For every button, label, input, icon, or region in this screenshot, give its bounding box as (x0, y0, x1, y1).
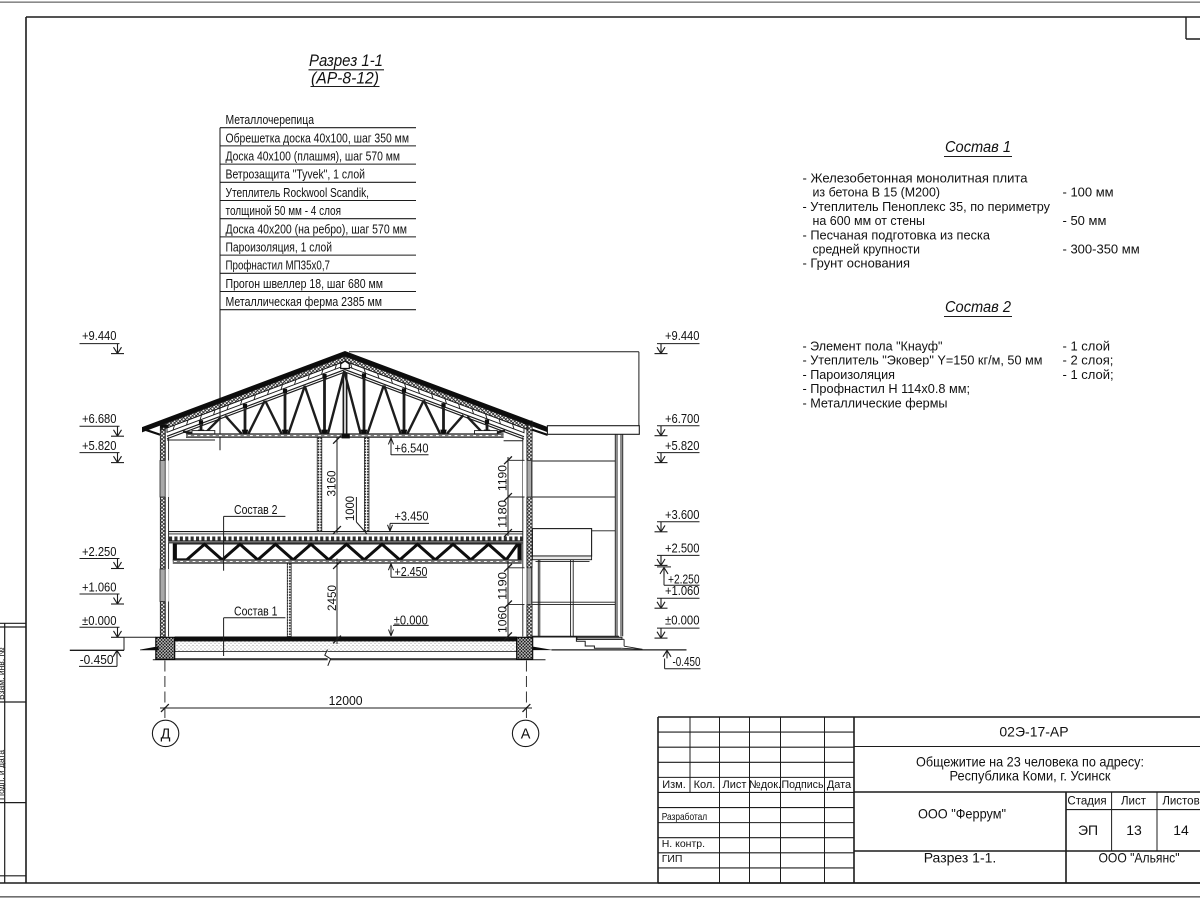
svg-text:из бетона В 15 (М200): из бетона В 15 (М200) (813, 185, 941, 200)
svg-text:ЭП: ЭП (1078, 822, 1098, 838)
svg-text:Состав 2: Состав 2 (945, 299, 1011, 316)
svg-text:- 2 слоя;: - 2 слоя; (1063, 353, 1114, 368)
svg-text:- 1 слой: - 1 слой (1063, 339, 1111, 354)
svg-text:Состав 1: Состав 1 (945, 139, 1011, 156)
svg-text:- 300-350 мм: - 300-350 мм (1063, 242, 1140, 257)
svg-text:- Элемент пола "Кнауф": - Элемент пола "Кнауф" (803, 339, 943, 354)
svg-text:средней крупности: средней крупности (813, 242, 921, 257)
svg-text:3160: 3160 (325, 470, 339, 496)
svg-text:Металлическая ферма 2385 мм: Металлическая ферма 2385 мм (226, 295, 383, 309)
svg-text:Разрез 1-1: Разрез 1-1 (309, 51, 383, 70)
svg-text:- 50 мм: - 50 мм (1063, 213, 1107, 228)
svg-text:(АР-8-12): (АР-8-12) (311, 69, 379, 88)
svg-text:- 100 мм: - 100 мм (1063, 185, 1114, 200)
svg-text:+9.440: +9.440 (665, 329, 700, 343)
svg-text:Подп. и дата: Подп. и дата (0, 750, 6, 800)
svg-text:Доска 40х200 (на ребро), шаг 5: Доска 40х200 (на ребро), шаг 570 мм (226, 222, 408, 236)
svg-text:2450: 2450 (325, 585, 339, 611)
svg-text:Дата: Дата (827, 779, 852, 791)
svg-text:Состав 2: Состав 2 (234, 502, 278, 517)
svg-text:- Железобетонная монолитная п: - Железобетонная монолитная плита (803, 171, 1029, 186)
svg-text:Разработал: Разработал (662, 811, 708, 823)
svg-text:ООО "Альянс": ООО "Альянс" (1099, 850, 1180, 866)
svg-text:- Грунт основания: - Грунт основания (803, 256, 911, 271)
svg-text:Металлочерепица: Металлочерепица (226, 113, 315, 127)
svg-text:Подпись: Подпись (782, 779, 824, 791)
svg-text:Ветрозащита "Tyvek", 1 слой: Ветрозащита "Tyvek", 1 слой (226, 168, 366, 182)
svg-text:1190: 1190 (495, 465, 509, 491)
svg-text:+5.820: +5.820 (665, 439, 700, 453)
svg-text:Профнастил МП35х0,7: Профнастил МП35х0,7 (226, 259, 331, 273)
svg-text:+3.600: +3.600 (665, 508, 700, 522)
svg-text:Листов: Листов (1162, 796, 1199, 808)
svg-text:+5.820: +5.820 (82, 439, 117, 453)
svg-text:Утеплитель Rockwool Scandik,: Утеплитель Rockwool Scandik, (226, 186, 370, 200)
svg-text:+2.250: +2.250 (82, 545, 117, 559)
svg-text:±0.000: ±0.000 (665, 614, 700, 628)
svg-text:Лист: Лист (723, 779, 747, 791)
svg-text:Пароизоляция, 1 слой: Пароизоляция, 1 слой (226, 241, 333, 255)
svg-text:- Песчаная подготовка из песка: - Песчаная подготовка из песка (803, 227, 991, 242)
svg-text:Взам. инв. №: Взам. инв. № (0, 647, 6, 700)
svg-text:±0.000: ±0.000 (82, 614, 117, 628)
svg-text:- Утеплитель Пеноплекс 35, по: - Утеплитель Пеноплекс 35, по периметру (803, 199, 1051, 214)
svg-text:Обрешетка доска 40х100, шаг 35: Обрешетка доска 40х100, шаг 350 мм (226, 131, 410, 145)
svg-text:А: А (521, 727, 531, 743)
svg-text:- 1 слой;: - 1 слой; (1063, 367, 1114, 382)
svg-text:Стадия: Стадия (1067, 796, 1106, 808)
svg-text:-0.450: -0.450 (80, 653, 114, 667)
svg-text:+6.540: +6.540 (395, 440, 429, 455)
svg-text:Доска 40х100 (плашмя), шаг 570: Доска 40х100 (плашмя), шаг 570 мм (226, 150, 401, 164)
svg-text:+3.450: +3.450 (395, 508, 429, 523)
svg-text:+2.500: +2.500 (665, 542, 700, 556)
svg-text:толщиной 50 мм - 4 слоя: толщиной 50 мм - 4 слоя (226, 204, 342, 218)
svg-text:14: 14 (1173, 822, 1189, 838)
svg-text:Разрез 1-1.: Разрез 1-1. (924, 850, 997, 866)
svg-text:1180: 1180 (495, 500, 509, 528)
svg-text:+1.060: +1.060 (82, 581, 117, 595)
svg-text:Прогон швеллер 18, шаг 680 мм: Прогон швеллер 18, шаг 680 мм (226, 277, 384, 291)
svg-text:1000: 1000 (343, 496, 357, 521)
svg-text:+2.450: +2.450 (395, 564, 428, 579)
svg-text:- Металлические фермы: - Металлические фермы (803, 395, 948, 410)
svg-text:-0.450: -0.450 (673, 655, 701, 669)
svg-text:+6.700: +6.700 (665, 412, 700, 426)
svg-text:12000: 12000 (329, 694, 363, 708)
svg-text:Н. контр.: Н. контр. (662, 838, 705, 850)
svg-text:№док.: №док. (749, 779, 781, 791)
svg-text:Изм.: Изм. (662, 779, 686, 791)
svg-text:Кол.: Кол. (694, 779, 716, 791)
svg-text:13: 13 (1126, 822, 1142, 838)
svg-text:1060: 1060 (495, 606, 509, 633)
svg-text:Лист: Лист (1121, 796, 1147, 808)
svg-text:Республика Коми, г. Усинск: Республика Коми, г. Усинск (950, 768, 1112, 784)
svg-text:на 600 мм от стены: на 600 мм от стены (813, 213, 926, 228)
svg-text:Состав 1: Состав 1 (234, 604, 278, 619)
svg-text:+9.440: +9.440 (82, 329, 117, 343)
svg-text:+2.250: +2.250 (668, 572, 700, 586)
svg-text:1190: 1190 (495, 572, 509, 600)
svg-text:ООО "Феррум": ООО "Феррум" (918, 806, 1006, 822)
svg-text:- Пароизоляция: - Пароизоляция (803, 367, 896, 382)
svg-text:ГИП: ГИП (662, 853, 683, 865)
svg-text:- Утеплитель "Эковер" Y=150 кг: - Утеплитель "Эковер" Y=150 кг/м, 50 мм (803, 353, 1043, 368)
svg-text:- Профнастил Н 114х0.8 мм;: - Профнастил Н 114х0.8 мм; (803, 381, 971, 396)
svg-text:02Э-17-АР: 02Э-17-АР (999, 724, 1068, 740)
svg-text:Д: Д (161, 727, 171, 743)
svg-text:+6.680: +6.680 (82, 412, 117, 426)
